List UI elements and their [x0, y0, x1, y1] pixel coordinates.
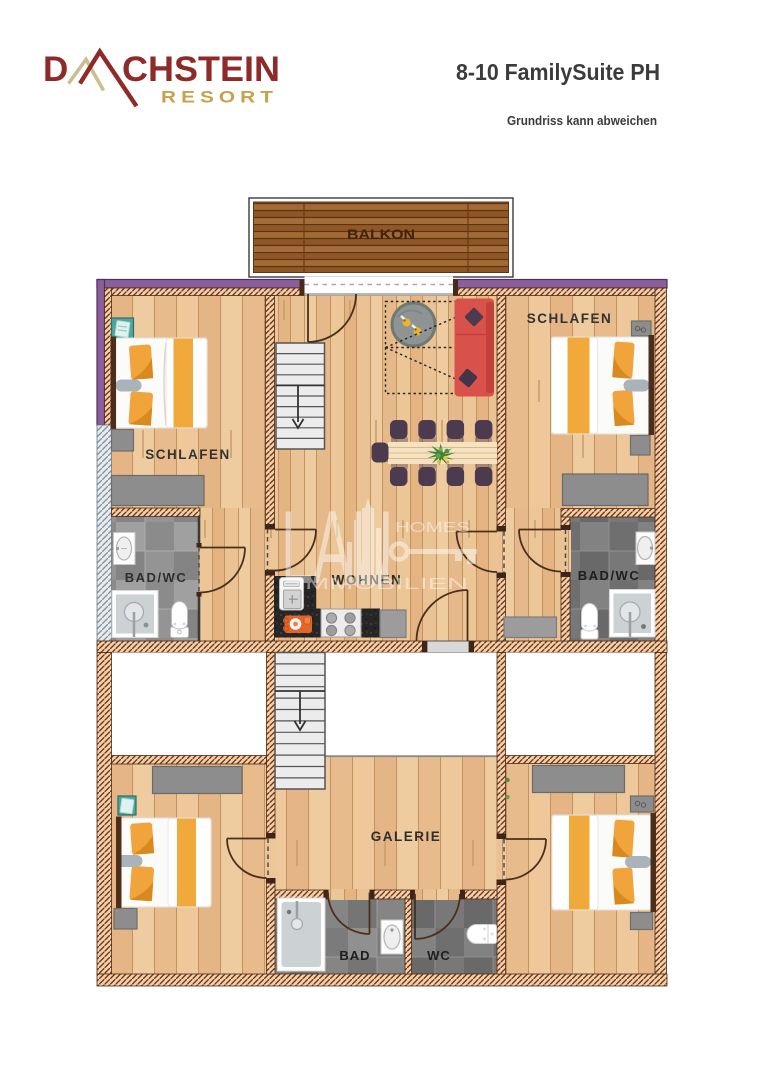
svg-text:BALKON: BALKON: [347, 226, 415, 242]
svg-text:BAD/WC: BAD/WC: [125, 570, 187, 585]
svg-text:SCHLAFEN: SCHLAFEN: [145, 447, 231, 462]
svg-text:BAD: BAD: [339, 948, 370, 963]
svg-text:SCHLAFEN: SCHLAFEN: [527, 311, 613, 326]
svg-text:WC: WC: [427, 948, 451, 963]
svg-text:HOMES: HOMES: [395, 519, 470, 536]
svg-text:CHSTEIN: CHSTEIN: [122, 50, 280, 89]
svg-text:BAD/WC: BAD/WC: [578, 568, 640, 583]
svg-text:IMMOBILIEN: IMMOBILIEN: [297, 576, 468, 593]
svg-text:8-10 FamilySuite PH: 8-10 FamilySuite PH: [456, 59, 660, 85]
svg-text:RESORT: RESORT: [161, 89, 278, 107]
svg-text:Grundriss kann abweichen: Grundriss kann abweichen: [507, 113, 657, 128]
svg-text:D: D: [43, 50, 68, 89]
svg-text:GALERIE: GALERIE: [371, 829, 442, 844]
